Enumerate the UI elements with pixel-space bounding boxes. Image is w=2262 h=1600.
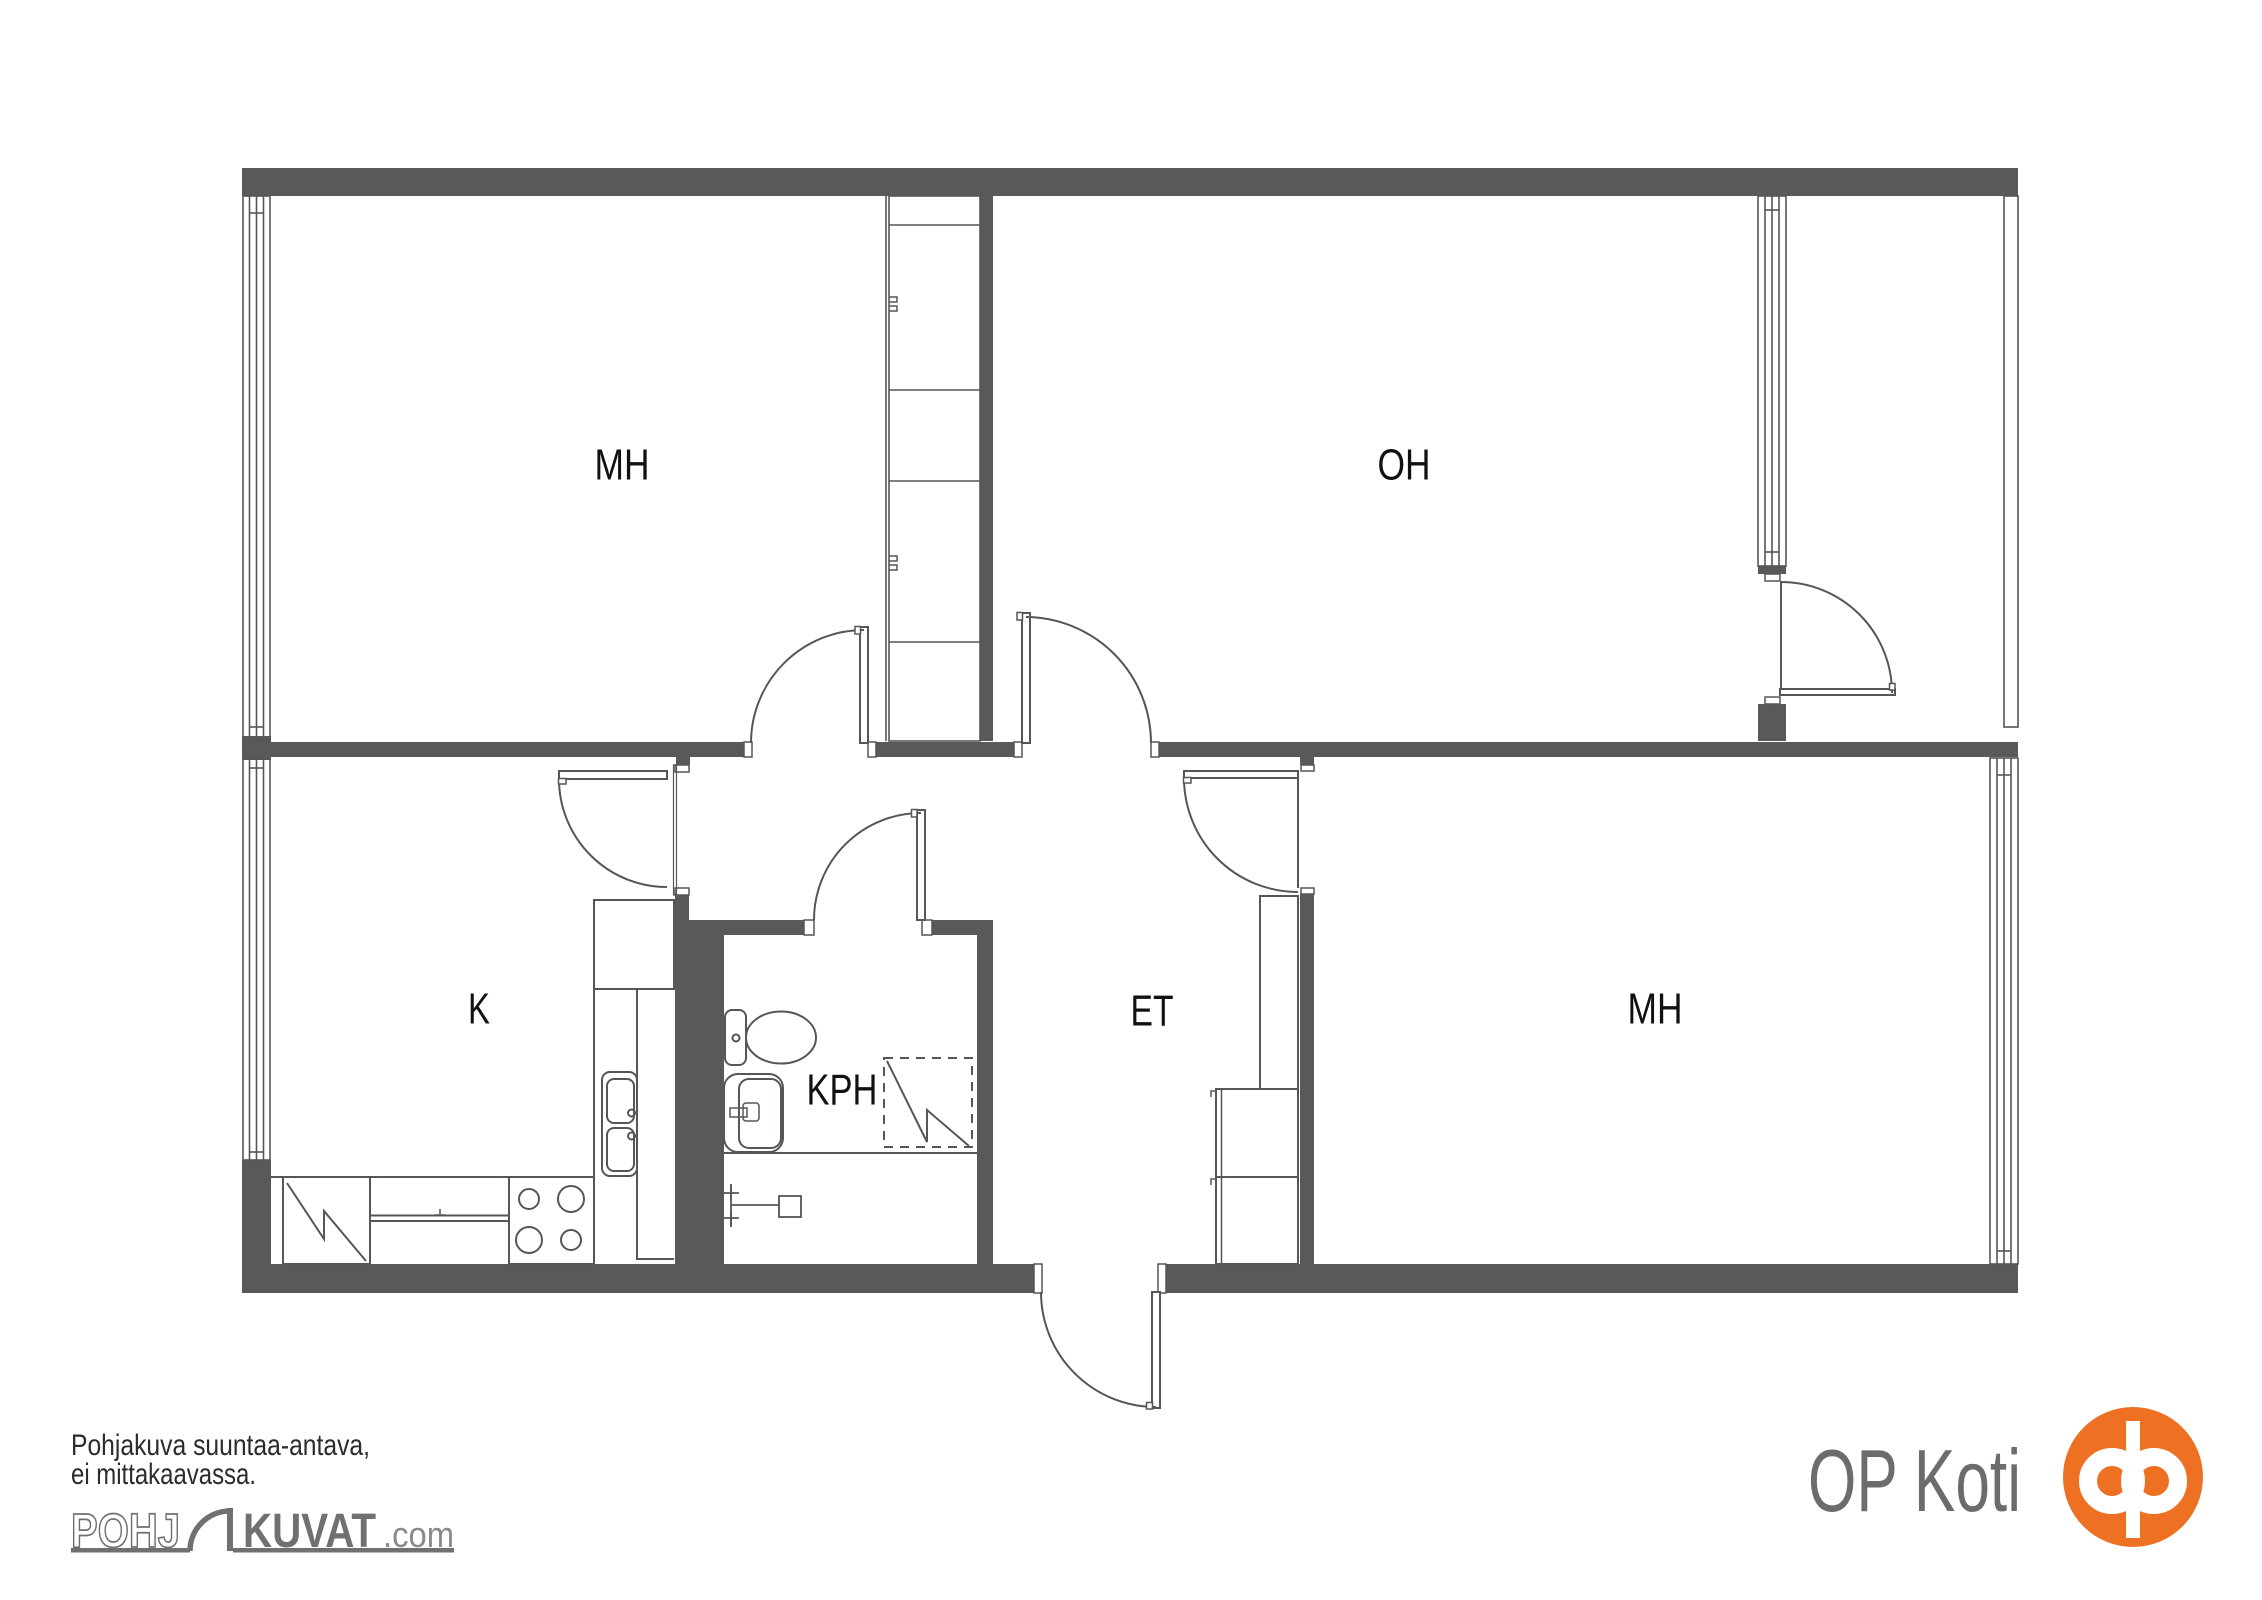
svg-text:OP Koti: OP Koti: [1808, 1431, 2021, 1530]
svg-text:K: K: [468, 985, 490, 1034]
svg-text:MH: MH: [1628, 985, 1683, 1034]
svg-text:OH: OH: [1378, 441, 1431, 490]
svg-text:ei mittakaavassa.: ei mittakaavassa.: [71, 1458, 256, 1491]
svg-text:ET: ET: [1131, 987, 1174, 1036]
svg-text:KPH: KPH: [807, 1066, 878, 1115]
svg-text:MH: MH: [595, 441, 650, 490]
